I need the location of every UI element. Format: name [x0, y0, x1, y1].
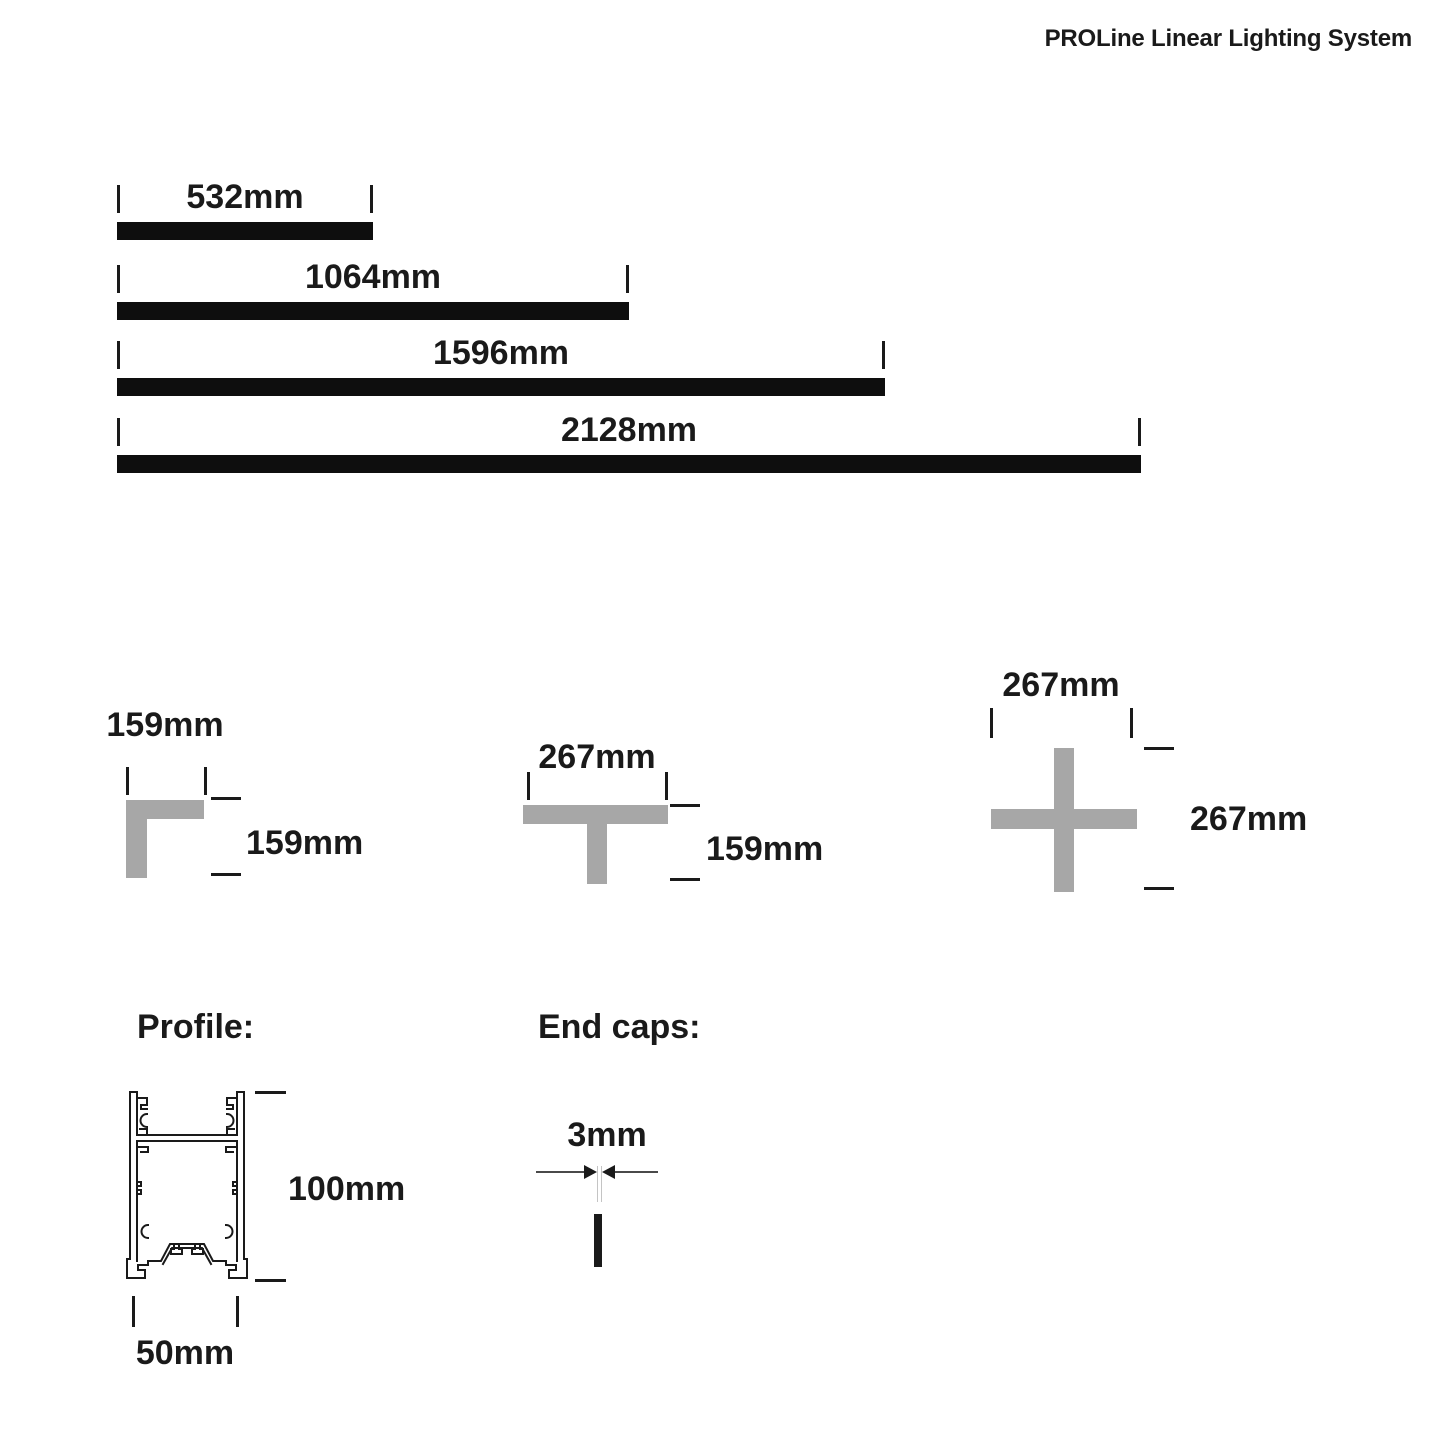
profile-length-group-532: 532mm [117, 183, 373, 243]
gap-line-left [597, 1166, 598, 1202]
length-label: 2128mm [117, 413, 1141, 447]
l-connector-width-label: 159mm [90, 708, 240, 742]
dim-tick-top [670, 804, 700, 807]
dim-line-right [615, 1171, 658, 1173]
end-cap-gap-label: 3mm [532, 1118, 682, 1152]
profile-length-group-1064: 1064mm [117, 263, 629, 323]
x-connector-horizontal-arm [991, 809, 1137, 829]
dim-tick-bottom [670, 878, 700, 881]
profile-length-group-1596: 1596mm [117, 339, 885, 399]
dim-tick-right [1130, 708, 1133, 738]
x-connector-height-label: 267mm [1190, 802, 1307, 836]
t-connector-width-label: 267mm [522, 740, 672, 774]
profile-bar [117, 378, 885, 396]
dim-tick-right [204, 767, 207, 795]
profile-bar [117, 455, 1141, 473]
profile-length-group-2128: 2128mm [117, 416, 1141, 476]
t-connector-horizontal-arm [523, 805, 668, 824]
profile-height-label: 100mm [288, 1172, 405, 1206]
arrow-right-icon [584, 1165, 597, 1179]
length-label: 1064mm [117, 260, 629, 294]
t-connector-height-label: 159mm [706, 832, 823, 866]
dim-tick-top [255, 1091, 286, 1094]
dim-tick-bottom [1144, 887, 1174, 890]
dim-tick-left [126, 767, 129, 795]
length-label: 1596mm [117, 336, 885, 370]
dim-tick-top [211, 797, 241, 800]
dim-line-left [536, 1171, 584, 1173]
t-connector-stem [587, 824, 607, 884]
proline-spec-sheet: PROLine Linear Lighting System 532mm 106… [0, 0, 1445, 1445]
gap-line-right [601, 1166, 602, 1202]
dim-tick-left [990, 708, 993, 738]
dim-tick-left [132, 1296, 135, 1327]
length-label: 532mm [117, 180, 373, 214]
dim-tick-top [1144, 747, 1174, 750]
dim-tick-right [665, 772, 668, 800]
dim-tick-bottom [255, 1279, 286, 1282]
dim-tick-left [527, 772, 530, 800]
l-connector-vertical-arm [126, 800, 147, 878]
l-connector-height-label: 159mm [246, 826, 363, 860]
arrow-left-icon [602, 1165, 615, 1179]
profile-width-label: 50mm [110, 1336, 260, 1370]
end-cap-bar [594, 1214, 602, 1267]
dim-tick-bottom [211, 873, 241, 876]
profile-bar [117, 302, 629, 320]
x-connector-width-label: 267mm [986, 668, 1136, 702]
profile-bar [117, 222, 373, 240]
dim-tick-right [236, 1296, 239, 1327]
profile-cross-section-drawing [126, 1087, 248, 1283]
page-title: PROLine Linear Lighting System [1045, 25, 1412, 53]
profile-heading: Profile: [137, 1010, 254, 1044]
end-caps-heading: End caps: [538, 1010, 700, 1044]
